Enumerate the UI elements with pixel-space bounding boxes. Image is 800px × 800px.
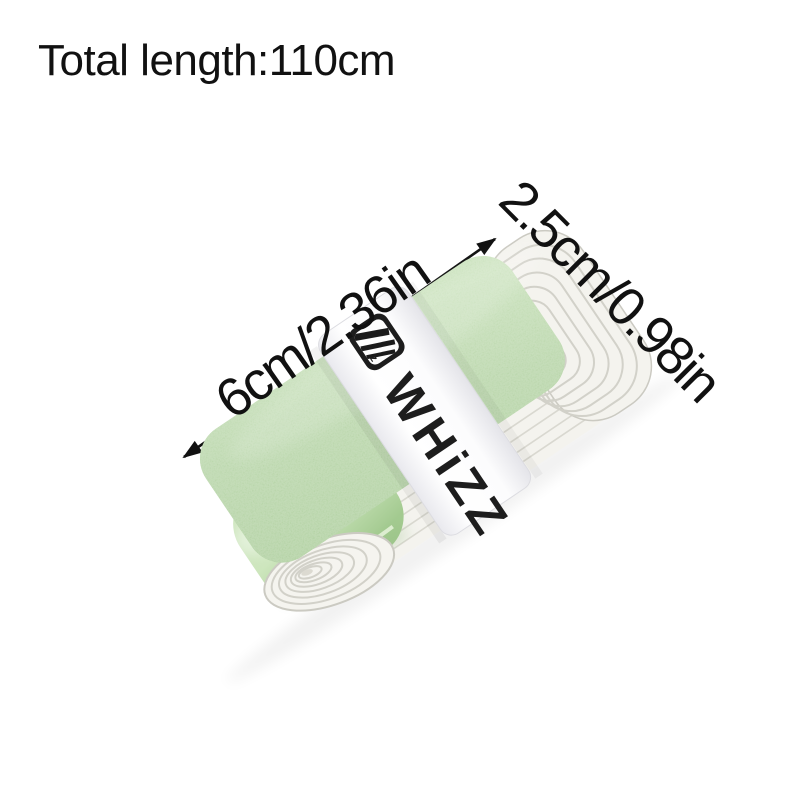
total-length-label: Total length:110cm <box>38 36 395 86</box>
product-photo: z WHiZZ Total length:110cm 6cm/2.36in 2.… <box>0 0 800 800</box>
